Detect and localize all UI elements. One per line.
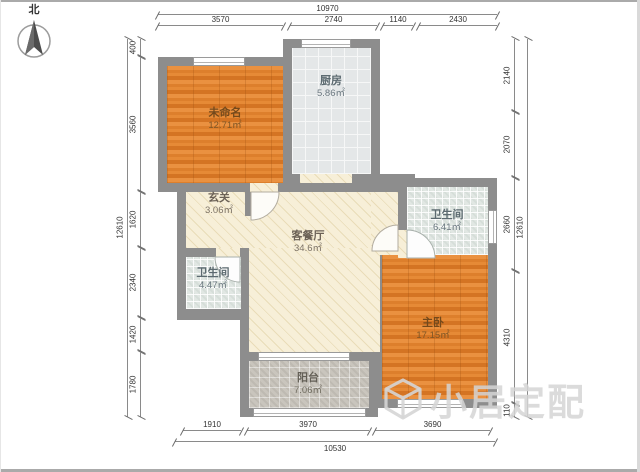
dim-top-seg-3: 1140 xyxy=(383,25,413,26)
wall-stub-foyer xyxy=(245,192,254,216)
dim-left-seg-3: 1620 xyxy=(140,192,141,248)
room-unnamed-floor[interactable] xyxy=(167,66,283,183)
dim-left-seg-5: 1420 xyxy=(140,318,141,352)
dim-right-seg-2: 2070 xyxy=(514,112,515,178)
room-living-main-floor[interactable] xyxy=(249,248,380,352)
room-bathroom-left-floor[interactable] xyxy=(186,257,241,309)
dim-right-total: 12610 xyxy=(527,39,528,417)
compass-icon xyxy=(8,16,60,64)
dim-top-seg-4: 2430 xyxy=(419,25,497,26)
dim-left-seg-2: 3560 xyxy=(140,57,141,192)
room-bathroom-right-floor[interactable] xyxy=(407,187,488,262)
room-master-bedroom-floor[interactable] xyxy=(382,255,488,399)
frame-left-line xyxy=(0,0,1,472)
compass-north-label: 北 xyxy=(8,4,60,16)
window-bedroom-bottom[interactable] xyxy=(397,399,463,408)
dim-top-seg-2: 2740 xyxy=(290,25,377,26)
dim-bottom-seg-3: 3690 xyxy=(375,430,490,431)
dim-right-seg-3: 2660 xyxy=(514,178,515,271)
window-balcony-slider[interactable] xyxy=(258,352,350,361)
dim-right-seg-1: 2140 xyxy=(514,39,515,112)
dim-bottom-total: 10530 xyxy=(175,441,495,442)
dim-left-seg-4: 2340 xyxy=(140,248,141,318)
window-bathroom-right[interactable] xyxy=(488,210,497,244)
dim-left-seg-6: 1780 xyxy=(140,352,141,417)
door-opening-bathroom-left xyxy=(216,248,240,257)
window-kitchen-top[interactable] xyxy=(301,39,351,48)
door-opening-master-bedroom xyxy=(378,246,398,255)
room-kitchen-floor[interactable] xyxy=(292,48,371,174)
dim-bottom-seg-1: 1910 xyxy=(183,430,241,431)
dim-bottom-seg-2: 3970 xyxy=(247,430,369,431)
dim-right-seg-4: 4310 xyxy=(514,271,515,404)
room-balcony-floor[interactable] xyxy=(249,361,369,408)
window-balcony-bottom[interactable] xyxy=(253,408,366,417)
room-hallway-floor[interactable] xyxy=(371,192,398,246)
door-opening-bathroom-right xyxy=(398,230,407,258)
frame-top-line xyxy=(0,0,640,2)
dim-top-seg-1: 3570 xyxy=(158,25,283,26)
dim-right-seg-5: 110 xyxy=(514,404,515,417)
door-opening-kitchen xyxy=(300,174,352,183)
room-foyer-living-upper-floor[interactable] xyxy=(186,192,380,248)
door-opening-unnamed xyxy=(250,183,278,192)
compass: 北 xyxy=(8,4,60,64)
window-unnamed-top[interactable] xyxy=(193,57,245,66)
